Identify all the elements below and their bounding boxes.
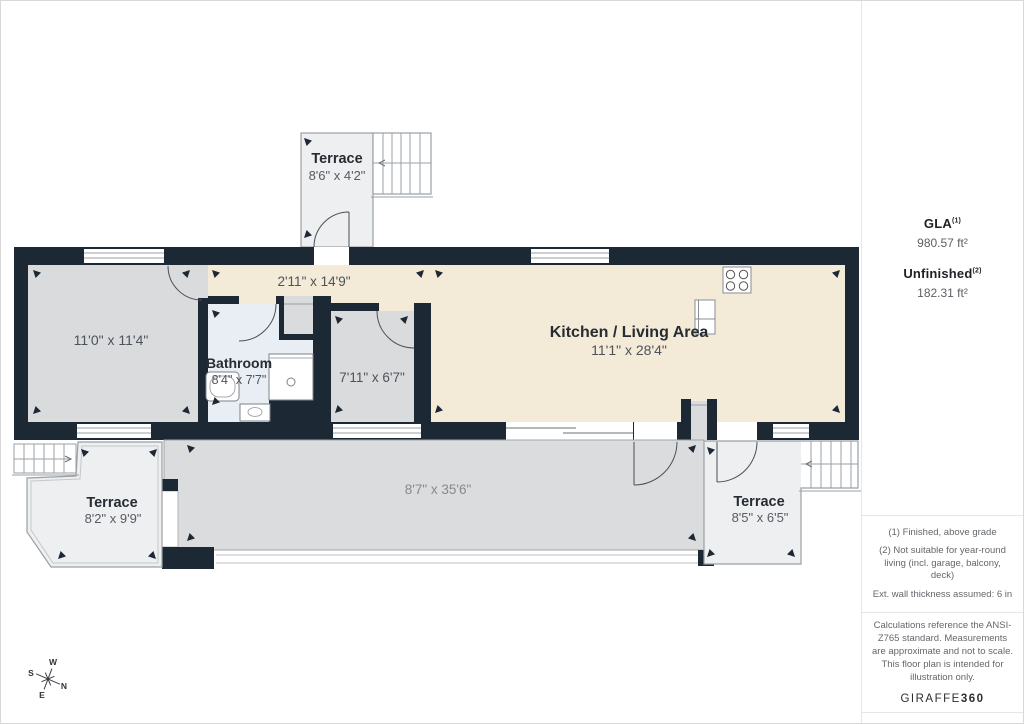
- unfinished-label: Unfinished(2): [903, 266, 981, 281]
- compass-east: E: [39, 690, 45, 700]
- footnotes-card: (1) Finished, above grade (2) Not suitab…: [862, 516, 1023, 613]
- kitchen-living-label: Kitchen / Living Area: [550, 324, 709, 341]
- kitchen-living-dims: 11'1" x 28'4": [591, 342, 667, 358]
- compass-west: W: [49, 657, 58, 667]
- compass-north: N: [61, 681, 67, 691]
- room-floors: [28, 265, 845, 422]
- disclaimer-text: Calculations reference the ANSI-Z765 sta…: [872, 620, 1013, 684]
- deck-area: [162, 440, 714, 569]
- brand-name: GIRAFFE: [900, 693, 960, 705]
- compass-rose: W S N E: [28, 657, 67, 700]
- unfinished-value: 182.31 ft²: [903, 286, 981, 300]
- bathroom-label: Bathroom: [206, 355, 272, 371]
- gla-value: 980.57 ft²: [917, 236, 968, 250]
- unfinished-stat: Unfinished(2) 182.31 ft²: [903, 266, 981, 300]
- footnote-1: (1) Finished, above grade: [872, 527, 1013, 539]
- gla-label-text: GLA: [924, 216, 952, 231]
- footnote-2: (2) Not suitable for year-round living (…: [872, 545, 1013, 582]
- bathroom-dims: 8'4" x 7'7": [212, 373, 267, 387]
- brand-logo: GIRAFFE360: [900, 693, 984, 705]
- terrace-right-dims: 8'5" x 6'5": [732, 510, 789, 525]
- unfinished-label-text: Unfinished: [903, 266, 972, 281]
- gla-footnote-marker: (1): [952, 218, 961, 225]
- disclaimer-card: Calculations reference the ANSI-Z765 sta…: [862, 613, 1023, 713]
- floorplan-drawing: Terrace 8'6" x 4'2" 11'0" x 11'4" Bathro…: [1, 1, 863, 724]
- gla-stat: GLA(1) 980.57 ft²: [917, 216, 968, 250]
- terrace-left-dims: 8'2" x 9'9": [85, 511, 142, 526]
- area-stats-card: GLA(1) 980.57 ft² Unfinished(2) 182.31 f…: [862, 1, 1023, 516]
- room-small-dims: 7'11" x 6'7": [339, 370, 405, 385]
- footnote-3: Ext. wall thickness assumed: 6 in: [872, 589, 1013, 601]
- brand-suffix: 360: [961, 693, 985, 705]
- terrace-top-dims: 8'6" x 4'2": [309, 168, 366, 183]
- shower: [269, 354, 313, 400]
- floorplan-page: Terrace 8'6" x 4'2" 11'0" x 11'4" Bathro…: [0, 0, 1024, 724]
- terrace-right-label: Terrace: [733, 494, 784, 510]
- hallway-dims: 2'11" x 14'9": [277, 274, 350, 289]
- deck-dims: 8'7" x 35'6": [405, 482, 472, 497]
- terrace-left-label: Terrace: [86, 495, 137, 511]
- room-left-dims: 11'0" x 11'4": [74, 332, 149, 348]
- unfinished-footnote-marker: (2): [973, 268, 982, 275]
- compass-south: S: [28, 668, 34, 678]
- sink: [240, 404, 270, 421]
- gla-label: GLA(1): [917, 216, 968, 231]
- info-panel: GLA(1) 980.57 ft² Unfinished(2) 182.31 f…: [861, 1, 1023, 724]
- terrace-top-label: Terrace: [311, 151, 362, 167]
